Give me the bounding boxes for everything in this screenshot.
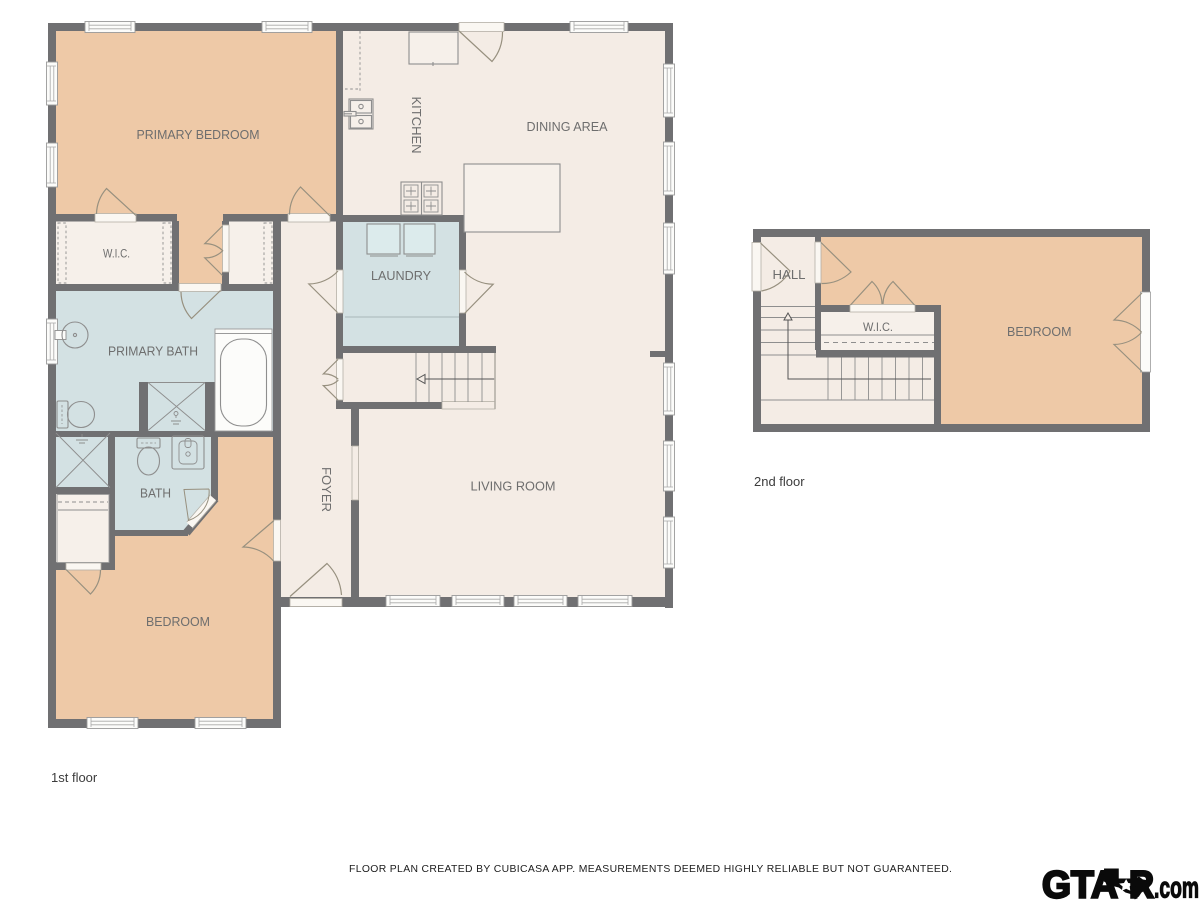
- svg-text:HALL: HALL: [773, 267, 806, 282]
- svg-text:LAUNDRY: LAUNDRY: [371, 268, 431, 283]
- svg-text:PRIMARY BATH: PRIMARY BATH: [108, 344, 198, 359]
- svg-text:PRIMARY BEDROOM: PRIMARY BEDROOM: [137, 127, 260, 142]
- svg-text:2nd floor: 2nd floor: [754, 474, 805, 489]
- svg-text:BATH: BATH: [140, 486, 171, 501]
- svg-text:1st floor: 1st floor: [51, 770, 98, 785]
- svg-text:BEDROOM: BEDROOM: [1007, 324, 1072, 339]
- svg-text:FLOOR PLAN CREATED BY CUBICASA: FLOOR PLAN CREATED BY CUBICASA APP. MEAS…: [349, 864, 952, 875]
- svg-text:.com: .com: [1154, 872, 1199, 900]
- svg-text:DINING AREA: DINING AREA: [527, 119, 608, 134]
- svg-text:KITCHEN: KITCHEN: [409, 97, 424, 154]
- svg-text:R: R: [1129, 864, 1154, 900]
- svg-text:W.I.C.: W.I.C.: [863, 320, 893, 334]
- svg-text:FOYER: FOYER: [319, 467, 334, 512]
- svg-text:W.I.C.: W.I.C.: [103, 247, 130, 261]
- svg-text:LIVING ROOM: LIVING ROOM: [471, 479, 556, 494]
- svg-text:BEDROOM: BEDROOM: [146, 614, 210, 629]
